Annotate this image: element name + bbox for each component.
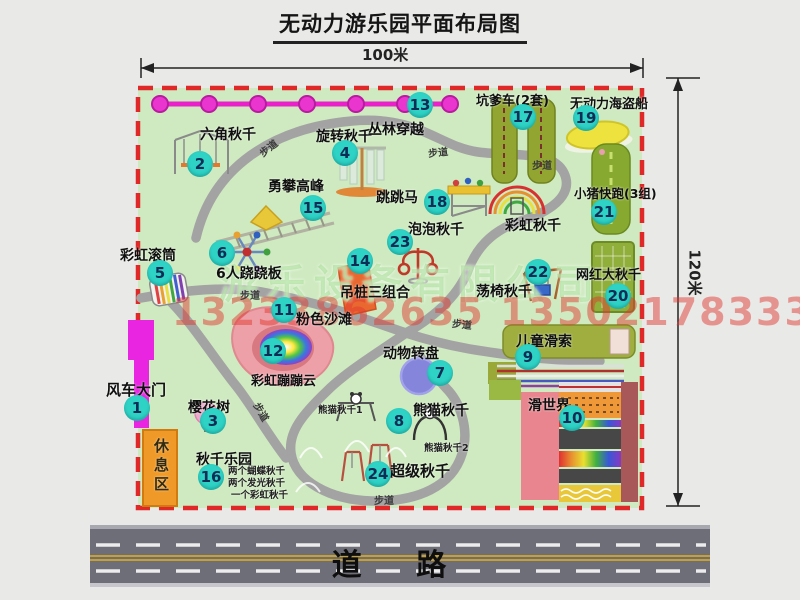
jumping-horse-badge: 18	[424, 189, 450, 215]
rotating-swing-badge: 4	[332, 140, 358, 166]
animal-turntable-label: 动物转盘	[383, 343, 439, 363]
right-dimension-label: 120米	[685, 249, 706, 295]
park-layout-map: 游乐设备有限公司 13233862635 13502178333 无动力游乐园平…	[0, 0, 800, 600]
top-dimension-label: 100米	[362, 44, 408, 65]
bubble-swing-label: 泡泡秋千	[408, 219, 464, 239]
hanging-post-combo-label: 吊桩三组合	[340, 282, 410, 302]
piggy-run-label: 小猪快跑(3组)	[574, 183, 657, 202]
influencer-big-swing-label: 网红大秋千	[576, 264, 641, 283]
rainbow-bounce-cloud-badge: 12	[260, 338, 286, 364]
panda-swing-2-label: 熊猫秋千2	[424, 440, 469, 454]
jungle-crossing-badge: 13	[407, 92, 433, 118]
jungle-crossing-label: 丛林穿越	[368, 119, 424, 139]
walkway-label-7: 步道	[374, 492, 394, 507]
walkway-label-5: 步道	[451, 315, 472, 332]
peak-climbing-label: 勇攀高峰	[268, 176, 324, 196]
windmill-gate-badge: 1	[124, 395, 150, 421]
road-label: 道 路	[332, 540, 468, 584]
bubble-swing-badge: 23	[387, 229, 413, 255]
pit-cart-badge: 17	[510, 104, 536, 130]
pit-cart-label: 坑爹车(2套)	[476, 90, 549, 109]
pirate-ship-badge: 19	[573, 105, 599, 131]
six-person-seesaw-label: 6人跷跷板	[216, 263, 282, 283]
piggy-run-badge: 21	[591, 199, 617, 225]
six-person-seesaw-badge: 6	[209, 240, 235, 266]
walkway-label-3: 步道	[532, 157, 552, 172]
super-swing-badge: 24	[365, 461, 391, 487]
peak-climbing-badge: 15	[300, 195, 326, 221]
rest-area-label: 休息区	[151, 438, 172, 495]
hanging-post-combo-badge: 14	[347, 248, 373, 274]
pink-beach-label: 粉色沙滩	[296, 309, 352, 329]
influencer-big-swing-badge: 20	[605, 283, 631, 309]
page-title: 无动力游乐园平面布局图	[273, 8, 527, 44]
rainbow-swing-label: 彩虹秋千	[505, 215, 561, 235]
panda-swing-1-label: 熊猫秋千1	[318, 402, 363, 416]
panda-swing-label: 熊猫秋千	[413, 400, 469, 420]
slide-world-badge: 10	[559, 405, 585, 431]
panda-swing-badge: 8	[386, 408, 412, 434]
jumping-horse-label: 跳跳马	[376, 187, 418, 207]
hexagon-swing-label: 六角秋千	[200, 124, 256, 144]
walkway-label-2: 步道	[427, 143, 448, 160]
animal-turntable-badge: 7	[427, 360, 453, 386]
cherry-blossom-tree-badge: 3	[200, 408, 226, 434]
rainbow-roller-badge: 5	[147, 260, 173, 286]
chair-swing-label: 荡椅秋千	[476, 281, 532, 301]
chair-swing-badge: 22	[525, 259, 551, 285]
swing-park-note-3: 一个彩虹秋千	[231, 487, 288, 501]
pink-beach-badge: 11	[271, 297, 297, 323]
hexagon-swing-badge: 2	[187, 151, 213, 177]
swing-park-badge: 16	[198, 464, 224, 490]
kids-zipline-badge: 9	[515, 344, 541, 370]
super-swing-label: 超级秋千	[390, 460, 450, 481]
walkway-label-4: 步道	[240, 287, 260, 302]
rainbow-bounce-cloud-label: 彩虹蹦蹦云	[251, 370, 316, 389]
